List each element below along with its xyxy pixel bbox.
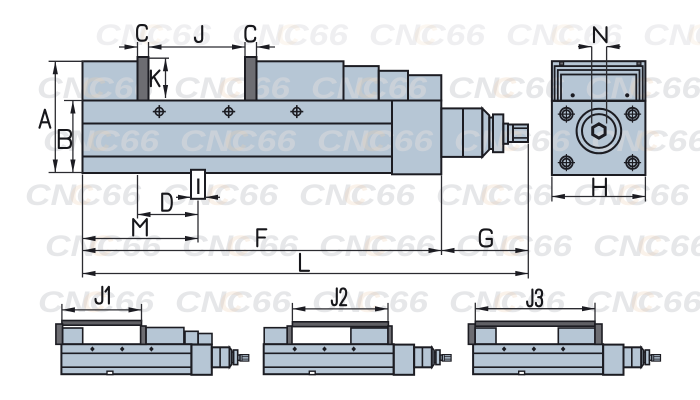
svg-text:C: C [219, 286, 244, 319]
svg-text:C: C [361, 125, 386, 158]
svg-text:C: C [413, 19, 438, 52]
svg-text:C: C [500, 230, 525, 263]
svg-text:C: C [635, 125, 660, 158]
svg-text:C: C [687, 19, 700, 52]
svg-text:C: C [363, 230, 388, 263]
svg-text:C: C [343, 179, 368, 212]
svg-text:C: C [276, 19, 301, 52]
svg-text:C: C [493, 286, 518, 319]
svg-text:C: C [69, 179, 94, 212]
svg-text:C: C [87, 125, 112, 158]
svg-text:C: C [630, 286, 655, 319]
svg-text:C: C [226, 230, 251, 263]
svg-text:C: C [356, 286, 381, 319]
svg-text:C: C [224, 125, 249, 158]
svg-text:C: C [206, 179, 231, 212]
svg-text:C: C [89, 230, 114, 263]
svg-text:C: C [492, 72, 517, 105]
svg-text:C: C [637, 230, 662, 263]
svg-text:C: C [82, 286, 107, 319]
svg-text:C: C [480, 179, 505, 212]
svg-text:C: C [550, 19, 575, 52]
